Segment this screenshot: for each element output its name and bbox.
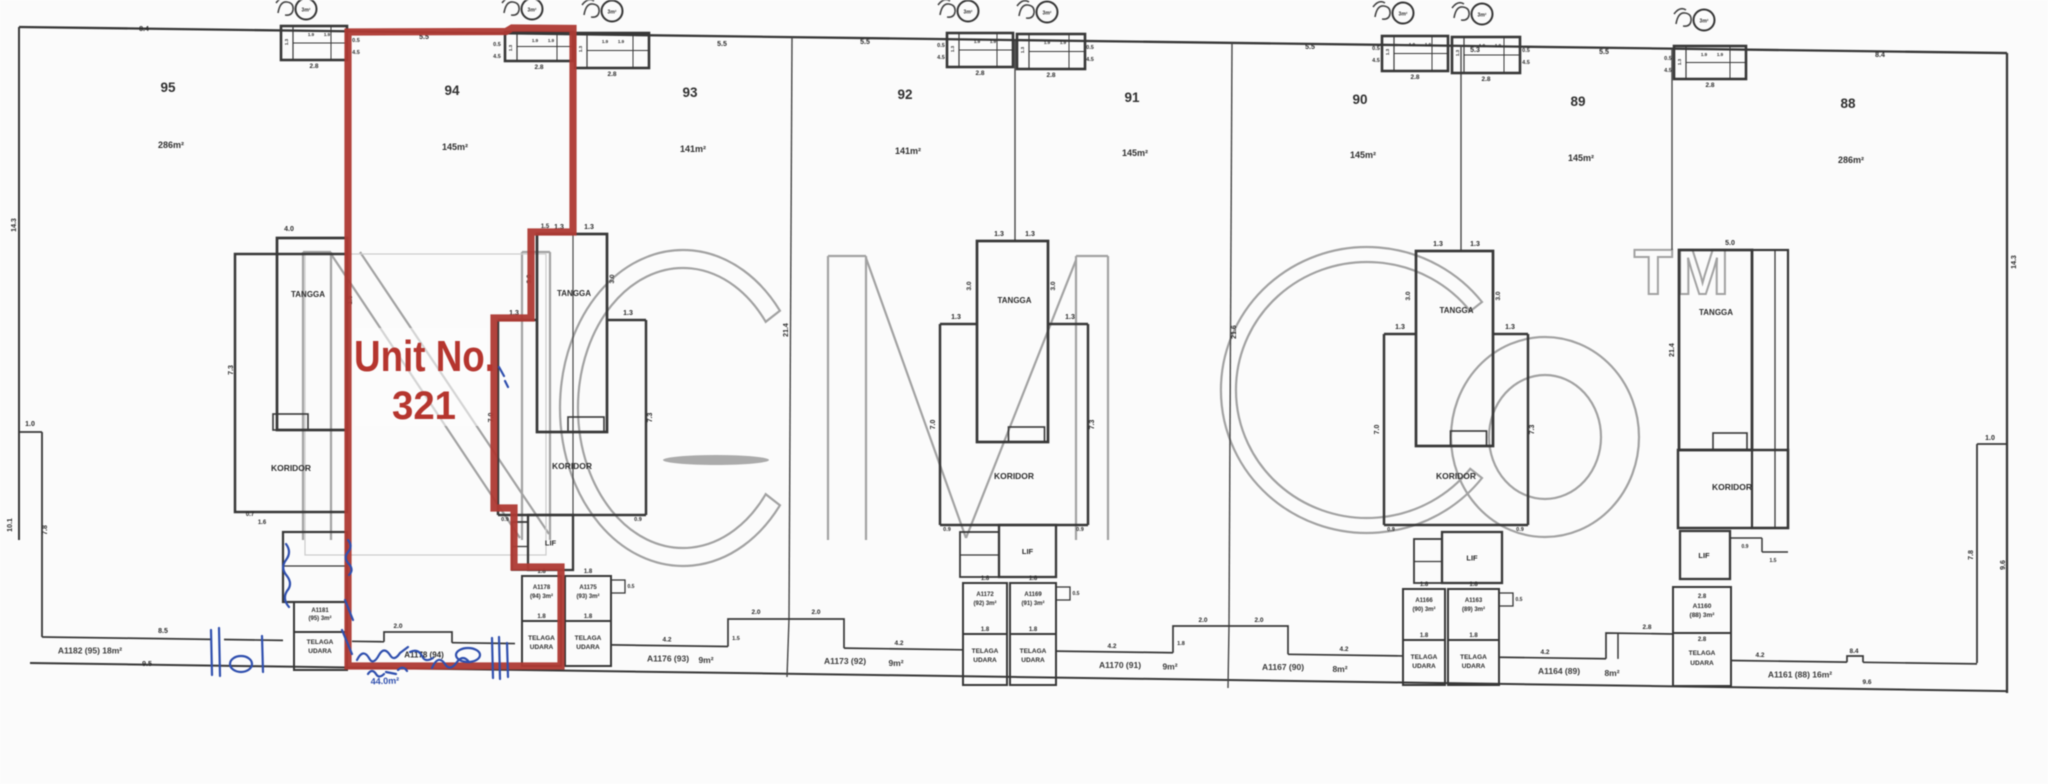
svg-text:3m²: 3m² [608,10,617,16]
svg-text:UDARA: UDARA [308,648,332,655]
svg-text:1.8: 1.8 [1469,633,1478,639]
svg-text:UDARA: UDARA [530,644,554,651]
svg-text:4.2: 4.2 [1755,652,1764,659]
svg-text:4.2: 4.2 [894,640,903,647]
svg-text:4.0: 4.0 [284,226,294,233]
svg-text:TELAGA: TELAGA [1411,654,1438,661]
svg-text:2.8: 2.8 [1698,594,1707,600]
svg-text:3.0: 3.0 [1050,281,1057,290]
svg-text:LIF: LIF [545,539,557,548]
svg-text:44.0m²: 44.0m² [370,676,399,687]
svg-text:0.5: 0.5 [1086,45,1094,51]
svg-text:2.8: 2.8 [607,71,616,78]
svg-text:2.8: 2.8 [1410,74,1419,81]
svg-text:145m²: 145m² [442,142,468,152]
svg-text:141m²: 141m² [680,144,706,154]
svg-text:141m²: 141m² [895,146,921,156]
svg-text:21.4: 21.4 [783,323,790,337]
svg-text:A1161 (88) 16m²: A1161 (88) 16m² [1768,669,1832,679]
svg-text:2.0: 2.0 [751,609,760,616]
svg-text:9.6: 9.6 [2000,560,2007,570]
svg-text:5.5: 5.5 [860,39,870,46]
svg-text:1.3: 1.3 [578,45,583,52]
svg-text:(89) 3m²: (89) 3m² [1462,606,1485,613]
svg-text:1.6: 1.6 [258,520,267,526]
svg-text:321: 321 [392,384,456,428]
svg-text:1.9: 1.9 [532,38,539,43]
svg-text:1.9: 1.9 [324,32,331,37]
svg-text:A1176 (93): A1176 (93) [647,654,689,664]
svg-text:2.8: 2.8 [1642,624,1651,631]
svg-text:7.3: 7.3 [1529,425,1536,435]
svg-text:1.3: 1.3 [1385,48,1390,55]
svg-text:(90) 3m²: (90) 3m² [1412,606,1435,613]
svg-text:1.0: 1.0 [25,421,35,428]
svg-text:0.5: 0.5 [937,43,945,49]
svg-text:A1167 (90): A1167 (90) [1262,662,1304,672]
svg-text:1.3: 1.3 [951,314,961,321]
svg-text:1.3: 1.3 [1395,324,1405,331]
svg-text:286m²: 286m² [158,140,184,150]
svg-text:94: 94 [444,83,460,98]
svg-text:7.3: 7.3 [647,413,654,423]
svg-text:UDARA: UDARA [576,644,600,651]
svg-text:1.8: 1.8 [1420,633,1429,639]
svg-text:4.2: 4.2 [1339,646,1348,653]
svg-text:1.3: 1.3 [994,231,1004,238]
svg-text:3.0: 3.0 [966,281,973,290]
svg-text:2.8: 2.8 [1046,72,1055,79]
svg-text:(91) 3m²: (91) 3m² [1021,600,1044,607]
svg-text:21.6: 21.6 [1231,325,1238,339]
svg-text:8.4: 8.4 [139,26,149,33]
svg-text:TANGGA: TANGGA [291,289,325,299]
svg-text:4.5: 4.5 [937,55,945,61]
svg-text:145m²: 145m² [1568,153,1594,163]
svg-text:LIF: LIF [1022,547,1034,556]
svg-text:1.9: 1.9 [1060,40,1067,45]
svg-text:5.3: 5.3 [1470,47,1480,54]
svg-text:A1169: A1169 [1024,592,1042,598]
svg-text:UDARA: UDARA [1412,663,1436,670]
svg-text:95: 95 [160,80,176,95]
svg-text:A1178: A1178 [533,585,551,591]
svg-text:3m²: 3m² [1478,13,1487,19]
svg-text:0.5: 0.5 [1516,597,1523,603]
svg-text:1.8: 1.8 [1177,641,1185,647]
svg-text:3.0: 3.0 [1495,291,1502,300]
svg-text:2.8: 2.8 [1698,637,1707,643]
svg-text:0.5: 0.5 [493,42,501,48]
svg-text:1.9: 1.9 [1409,42,1416,47]
svg-text:3m²: 3m² [528,8,537,14]
svg-text:4.5: 4.5 [1522,60,1530,66]
svg-text:(95) 3m²: (95) 3m² [308,615,331,622]
svg-text:1.9: 1.9 [1425,42,1432,47]
svg-text:2.8: 2.8 [534,64,543,71]
svg-text:9.6: 9.6 [1862,679,1871,686]
svg-text:9m²: 9m² [1162,662,1177,672]
svg-text:1.9: 1.9 [1495,43,1502,48]
svg-text:0.9: 0.9 [1076,527,1084,533]
svg-text:1.8: 1.8 [1469,582,1478,588]
svg-text:A1163: A1163 [1465,598,1483,604]
svg-text:1.3: 1.3 [1020,46,1025,53]
svg-text:0.5: 0.5 [1073,591,1080,597]
svg-text:3.0: 3.0 [609,274,616,283]
svg-text:(93) 3m²: (93) 3m² [576,593,599,600]
svg-text:1.5: 1.5 [732,636,740,642]
svg-text:TELAGA: TELAGA [528,635,555,642]
svg-text:1.3: 1.3 [1505,324,1515,331]
svg-text:5.5: 5.5 [1305,44,1315,51]
svg-text:A1166: A1166 [1415,598,1433,604]
svg-text:TELAGA: TELAGA [1460,654,1487,661]
svg-text:1.9: 1.9 [990,39,997,44]
svg-text:4.2: 4.2 [1540,649,1549,656]
svg-text:KORIDOR: KORIDOR [552,461,592,471]
svg-text:0.9: 0.9 [634,517,642,523]
svg-text:0.7: 0.7 [246,512,255,518]
svg-text:KORIDOR: KORIDOR [1712,482,1752,492]
svg-text:93: 93 [682,85,698,100]
svg-text:9m²: 9m² [698,655,713,665]
svg-text:5.5: 5.5 [1599,49,1609,56]
svg-text:1.3: 1.3 [284,38,289,45]
svg-text:7.3: 7.3 [228,365,235,375]
svg-text:145m²: 145m² [1122,148,1148,158]
svg-text:A1182 (95) 18m²: A1182 (95) 18m² [58,646,122,656]
svg-text:TELAGA: TELAGA [972,648,999,655]
svg-text:1.9: 1.9 [602,39,609,44]
svg-text:UDARA: UDARA [973,657,997,664]
svg-text:1.9: 1.9 [1044,40,1051,45]
svg-text:7.0: 7.0 [1374,425,1381,435]
svg-text:1.8: 1.8 [584,569,593,575]
svg-text:7.8: 7.8 [42,525,49,535]
svg-text:2.8: 2.8 [1481,76,1490,83]
svg-text:1.3: 1.3 [1677,58,1682,65]
svg-text:1.3: 1.3 [1455,49,1460,56]
svg-text:0.9: 0.9 [1742,544,1749,550]
svg-text:3m²: 3m² [302,8,311,14]
svg-text:5.5: 5.5 [717,41,727,48]
svg-text:145m²: 145m² [1350,150,1376,160]
svg-text:2.8: 2.8 [1705,82,1714,89]
svg-text:1.8: 1.8 [1420,582,1429,588]
svg-text:3m²: 3m² [1700,19,1709,25]
svg-text:0.5: 0.5 [352,38,360,44]
svg-text:1.9: 1.9 [618,39,625,44]
svg-text:4.5: 4.5 [1086,57,1094,63]
svg-text:0.5: 0.5 [1522,48,1530,54]
svg-text:0.9: 0.9 [943,527,951,533]
svg-text:4.5: 4.5 [493,54,501,60]
svg-text:1.3: 1.3 [1470,241,1480,248]
svg-text:88: 88 [1840,96,1856,111]
svg-text:4.2: 4.2 [662,637,671,644]
svg-text:1.3: 1.3 [1025,231,1035,238]
svg-text:21.4: 21.4 [1669,343,1676,357]
svg-text:3.0: 3.0 [1405,291,1412,300]
svg-text:KORIDOR: KORIDOR [271,463,311,473]
svg-text:4.5: 4.5 [352,50,360,56]
svg-text:1.8: 1.8 [1029,627,1038,633]
svg-text:1.8: 1.8 [537,614,546,620]
svg-text:4.5: 4.5 [1372,58,1380,64]
svg-text:A1172: A1172 [976,592,994,598]
svg-text:8.4: 8.4 [1849,648,1858,655]
svg-text:(88) 3m²: (88) 3m² [1690,612,1716,619]
svg-text:2.0: 2.0 [811,609,820,616]
svg-text:A1175: A1175 [579,585,597,591]
svg-text:2.0: 2.0 [393,623,402,630]
svg-text:1.0: 1.0 [1985,435,1995,442]
svg-text:TELAGA: TELAGA [307,639,334,646]
svg-text:1.3: 1.3 [1065,314,1075,321]
svg-text:8.4: 8.4 [1875,52,1885,59]
svg-text:5.0: 5.0 [1725,240,1735,247]
svg-text:7.8: 7.8 [1968,550,1975,560]
svg-text:3m²: 3m² [1043,11,1052,17]
svg-text:1.9: 1.9 [308,32,315,37]
svg-text:90: 90 [1352,92,1367,107]
svg-text:1.3: 1.3 [623,310,633,317]
svg-text:8.5: 8.5 [158,628,168,635]
svg-text:KORIDOR: KORIDOR [1436,471,1476,481]
svg-text:1.3: 1.3 [950,45,955,52]
svg-text:3m²: 3m² [1399,12,1408,18]
svg-text:2.8: 2.8 [309,63,318,70]
svg-text:UDARA: UDARA [1690,660,1714,667]
svg-text:A1170 (91): A1170 (91) [1099,660,1141,670]
svg-text:LIF: LIF [1466,554,1478,563]
svg-text:14.3: 14.3 [11,218,18,232]
svg-text:91: 91 [1124,90,1140,105]
svg-text:1.9: 1.9 [974,39,981,44]
svg-text:7.0: 7.0 [930,420,937,430]
svg-text:TM: TM [1634,236,1732,308]
svg-text:2.0: 2.0 [1254,617,1263,624]
svg-text:1.3: 1.3 [1433,241,1443,248]
svg-text:TANGGA: TANGGA [557,288,591,298]
svg-text:0.5: 0.5 [1664,56,1672,62]
svg-text:(92) 3m²: (92) 3m² [973,600,996,607]
svg-text:2.0: 2.0 [1198,617,1207,624]
svg-text:UDARA: UDARA [1021,657,1045,664]
svg-text:92: 92 [897,87,912,102]
svg-text:3m²: 3m² [964,10,973,16]
svg-text:89: 89 [1570,94,1585,109]
svg-text:Unit No.: Unit No. [354,332,495,381]
svg-text:A1164 (89): A1164 (89) [1538,666,1580,676]
svg-text:1.9: 1.9 [548,38,555,43]
svg-text:TANGGA: TANGGA [1699,307,1733,317]
svg-text:9.5: 9.5 [142,661,152,668]
svg-text:TANGGA: TANGGA [998,295,1032,305]
svg-text:0.9: 0.9 [1387,527,1395,533]
svg-text:10.1: 10.1 [7,518,14,532]
svg-text:4.2: 4.2 [1107,643,1116,650]
svg-text:14.3: 14.3 [2011,255,2018,269]
svg-text:1.8: 1.8 [981,576,990,582]
svg-text:TANGGA: TANGGA [1440,305,1474,315]
svg-text:KORIDOR: KORIDOR [994,471,1034,481]
svg-text:TELAGA: TELAGA [1020,648,1047,655]
svg-text:1.9: 1.9 [1479,43,1486,48]
svg-text:A1160: A1160 [1693,603,1712,610]
svg-text:9m²: 9m² [888,658,903,668]
svg-text:LIF: LIF [1698,551,1710,560]
svg-text:0.9: 0.9 [1516,527,1524,533]
svg-text:(94) 3m²: (94) 3m² [530,593,553,600]
svg-text:1.3: 1.3 [584,224,594,231]
svg-text:2.8: 2.8 [975,70,984,77]
svg-text:1.8: 1.8 [981,627,990,633]
svg-text:A1173 (92): A1173 (92) [824,656,866,666]
svg-text:A1181: A1181 [311,608,329,614]
svg-text:UDARA: UDARA [1462,663,1486,670]
svg-text:TELAGA: TELAGA [1689,650,1716,657]
svg-text:7.3: 7.3 [1089,420,1096,430]
svg-text:1.9: 1.9 [1717,52,1724,57]
svg-text:8m²: 8m² [1332,664,1347,674]
svg-text:8m²: 8m² [1604,668,1619,678]
svg-text:0.5: 0.5 [1372,46,1380,52]
svg-text:1.8: 1.8 [584,614,593,620]
svg-text:286m²: 286m² [1838,155,1864,165]
svg-text:1.9: 1.9 [1701,52,1708,57]
svg-text:TELAGA: TELAGA [575,635,602,642]
svg-text:0.9: 0.9 [501,517,509,523]
svg-text:1.8: 1.8 [1029,576,1038,582]
svg-text:4.5: 4.5 [1664,68,1672,74]
svg-text:1.3: 1.3 [508,44,513,51]
svg-text:0.5: 0.5 [628,584,635,590]
svg-text:1.5: 1.5 [1770,558,1777,564]
